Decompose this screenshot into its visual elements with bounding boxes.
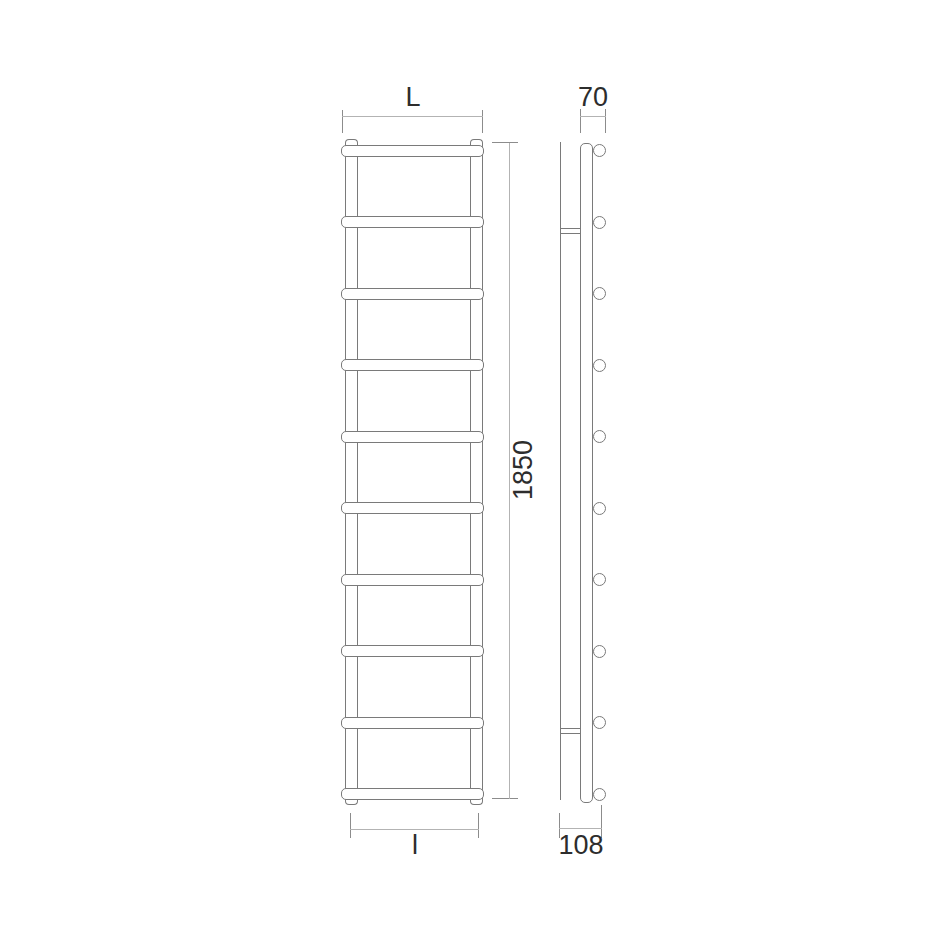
dim-height-label: 1850: [510, 440, 537, 500]
dim-width-label: L: [343, 84, 483, 111]
dim-overall-depth-line: [559, 828, 602, 829]
dimensions: L 1850 l 70 108: [0, 0, 950, 950]
dim-overall-depth-label: 108: [551, 832, 611, 859]
radiator-technical-drawing: L 1850 l 70 108: [0, 0, 950, 950]
dim-depth-tick-left: [580, 109, 581, 133]
dim-height-tick-top: [492, 142, 518, 143]
dim-depth-line: [580, 116, 606, 117]
dim-height-tick-bottom: [492, 798, 518, 799]
dim-depth-tick-right: [605, 109, 606, 133]
dim-width-line: [342, 116, 483, 117]
dim-interaxis-label: l: [345, 832, 485, 859]
dim-depth-label: 70: [563, 84, 623, 111]
dim-width-tick-right: [482, 110, 483, 133]
dim-width-tick-left: [342, 110, 343, 133]
